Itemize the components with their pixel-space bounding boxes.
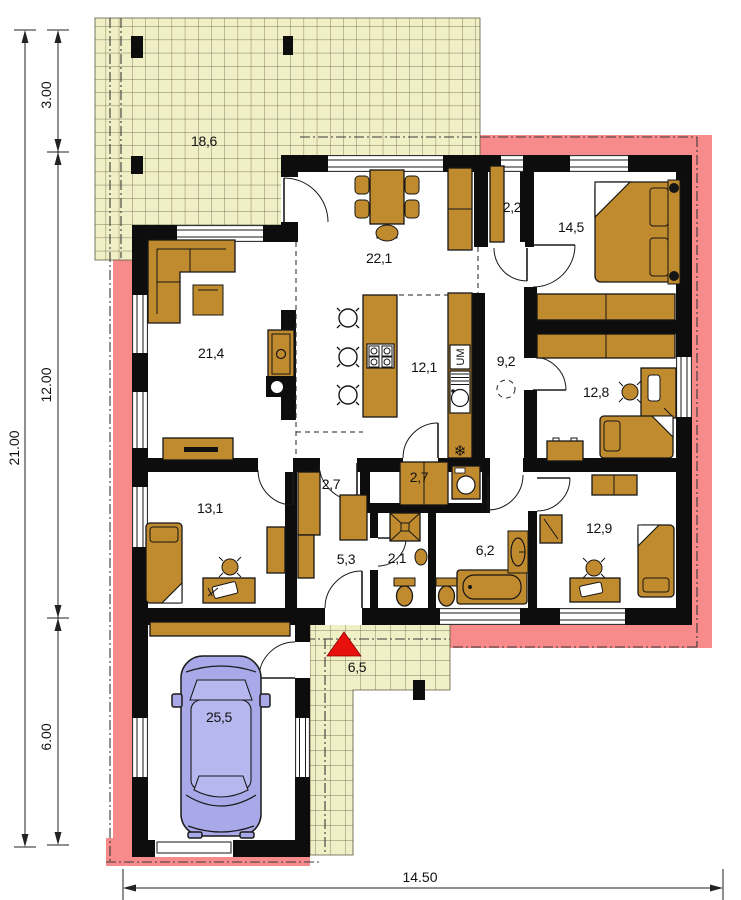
room-label-kitchen: 12,1 [411, 359, 438, 375]
washbasin-small [415, 549, 427, 565]
shower [390, 513, 420, 541]
freezer-icon: ❄ [454, 443, 467, 460]
bedroom3-nightstand [540, 515, 562, 543]
room-label-living-room: 21,4 [198, 345, 225, 361]
kitchen-counter: UM ❄ [448, 293, 472, 460]
porch-paving [310, 623, 450, 855]
window [132, 718, 148, 777]
window [570, 155, 628, 172]
dim-left-total: 21.00 [6, 430, 22, 465]
bedroom3-wardrobe [592, 475, 637, 495]
dim-left-seg-3: 6.00 [38, 723, 54, 750]
bathtub [457, 570, 527, 604]
bedroom3-bed [638, 525, 674, 597]
bedroom2-wardrobe [267, 527, 285, 573]
floor-plan-canvas: UM ❄ [0, 0, 741, 900]
room-label-hall: 9,2 [497, 353, 516, 369]
room-label-porch: 6,5 [348, 659, 367, 675]
dim-left-seg-2: 12.00 [38, 367, 54, 402]
dishwasher-label: UM [455, 348, 467, 365]
car [172, 656, 270, 838]
room-label-terrace: 18,6 [191, 133, 218, 149]
study-bed [600, 416, 673, 458]
room-label-living-dining: 22,1 [366, 250, 393, 266]
room-label-utility: 2,7 [410, 469, 429, 485]
window [560, 608, 625, 625]
garage-shelf [150, 622, 290, 636]
room-label-bedroom-3: 12,9 [586, 520, 613, 536]
room-label-bedroom-1: 14,5 [558, 219, 585, 235]
window [295, 718, 310, 777]
bedroom2-bed [146, 523, 182, 603]
tv-cabinet [163, 438, 233, 460]
window [676, 357, 692, 417]
window [440, 608, 520, 625]
double-bed [595, 180, 680, 284]
dim-bottom-total: 14.50 [402, 869, 437, 885]
fireplace [266, 330, 296, 397]
room-label-corridor: 2,7 [322, 476, 341, 492]
washbasin [508, 531, 528, 573]
room-label-study: 12,8 [583, 384, 610, 400]
bar-stools [337, 308, 359, 405]
dim-left-seg-1: 3.00 [38, 81, 54, 108]
kitchen-sink [450, 371, 470, 413]
window [132, 295, 148, 353]
room-label-closet: 2,2 [503, 199, 522, 215]
room-label-garage: 25,5 [206, 709, 233, 725]
room-label-hallway: 5,3 [337, 551, 356, 567]
washing-machine [452, 466, 480, 499]
kitchen-island [363, 295, 397, 417]
room-label-wc: 2,1 [388, 550, 407, 566]
window [132, 392, 148, 448]
floor-plan-drawing: UM ❄ [0, 0, 741, 900]
study-chest [547, 438, 583, 461]
room-label-bedroom-2: 13,1 [197, 500, 224, 516]
room-label-bathroom: 6,2 [476, 542, 495, 558]
